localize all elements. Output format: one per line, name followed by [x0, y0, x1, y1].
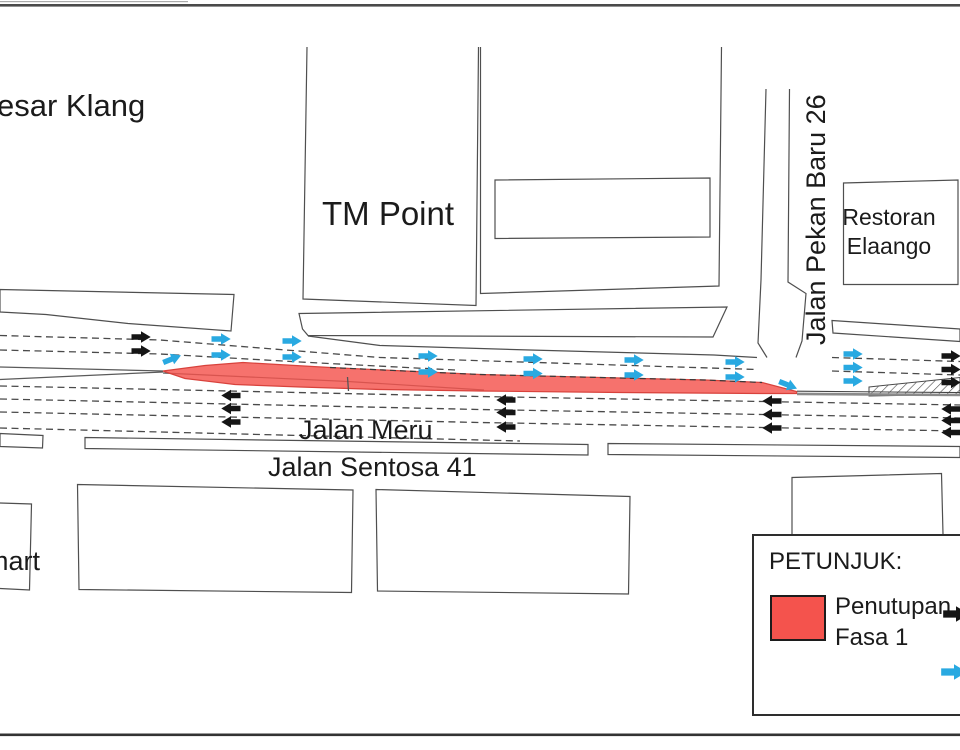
place-label-tm-point: TM Point — [322, 195, 454, 233]
traffic-arrow-left-icon — [941, 415, 960, 426]
restoran-line2: Elaango — [836, 232, 942, 261]
road-label-jalan-meru: Jalan Meru — [299, 415, 433, 446]
traffic-arrow-left-icon — [762, 422, 781, 433]
restoran-line1: Restoran — [836, 203, 942, 232]
building-tm-point — [303, 47, 479, 306]
sidewalk-strip-left — [0, 290, 234, 332]
legend-black-arrow-icon — [930, 600, 960, 628]
median-edge-lower — [0, 372, 163, 380]
median-island-3 — [608, 444, 960, 458]
building-south-3 — [792, 474, 943, 535]
traffic-arrow-left-icon — [941, 427, 960, 438]
diversion-arrow-icon — [212, 349, 231, 360]
traffic-arrow-left-icon — [221, 416, 240, 427]
traffic-arrow-left-icon — [496, 407, 515, 418]
road-top-edge — [308, 336, 757, 358]
place-label-pasar-besar-klang: esar Klang — [0, 88, 145, 124]
jalan-pekan-baru-left-edge — [758, 89, 767, 358]
closure-swatch-icon — [769, 594, 827, 642]
diversion-arrow-icon — [283, 335, 302, 346]
diversion-arrow-icon — [161, 350, 183, 368]
building-center — [481, 47, 722, 294]
traffic-arrow-right-icon — [942, 350, 960, 361]
frame-top-line — [0, 4, 960, 7]
diversion-arrow-icon — [212, 333, 231, 344]
median-island-1 — [0, 434, 43, 449]
traffic-plan-map: esar Klang TM Point Jalan Pekan Baru 26 … — [0, 0, 960, 750]
legend-title: PETUNJUK: — [769, 548, 902, 576]
place-label-mart: mart — [0, 546, 40, 577]
legend-box: PETUNJUK: Penutupan Fasa 1 — [752, 534, 960, 716]
frame-bottom-line — [0, 734, 960, 737]
traffic-arrow-left-icon — [762, 409, 781, 420]
median-line-gray — [797, 394, 960, 395]
traffic-arrow-right-icon — [132, 331, 151, 342]
sidewalk-strip-right — [832, 321, 960, 342]
frame-top-line-left — [0, 1, 188, 2]
diversion-arrow-icon — [625, 354, 644, 365]
place-label-restoran-elaango: Restoran Elaango — [836, 203, 942, 261]
lane-line — [0, 428, 520, 441]
road-label-jalan-pekan-baru-26: Jalan Pekan Baru 26 — [801, 119, 835, 345]
lane-line — [832, 358, 960, 362]
traffic-arrow-left-icon — [762, 395, 781, 406]
traffic-arrow-right-icon — [942, 364, 960, 375]
traffic-arrow-left-icon — [496, 394, 515, 405]
lane-line — [832, 371, 960, 375]
diversion-arrow-icon — [844, 375, 863, 386]
lane-line — [0, 412, 960, 431]
traffic-arrow-right-icon — [132, 345, 151, 356]
diversion-arrow-icon — [419, 350, 438, 361]
diversion-arrow-icon — [283, 351, 302, 362]
building-south-1 — [78, 485, 354, 593]
sidewalk-strip-middle — [299, 307, 727, 337]
diversion-arrow-icon — [726, 356, 745, 367]
median-edge-upper — [0, 367, 163, 371]
building-center-annex — [495, 178, 710, 239]
legend-cyan-arrow-icon — [928, 658, 960, 686]
building-south-2 — [376, 490, 630, 595]
road-label-jalan-sentosa-41: Jalan Sentosa 41 — [268, 452, 477, 483]
